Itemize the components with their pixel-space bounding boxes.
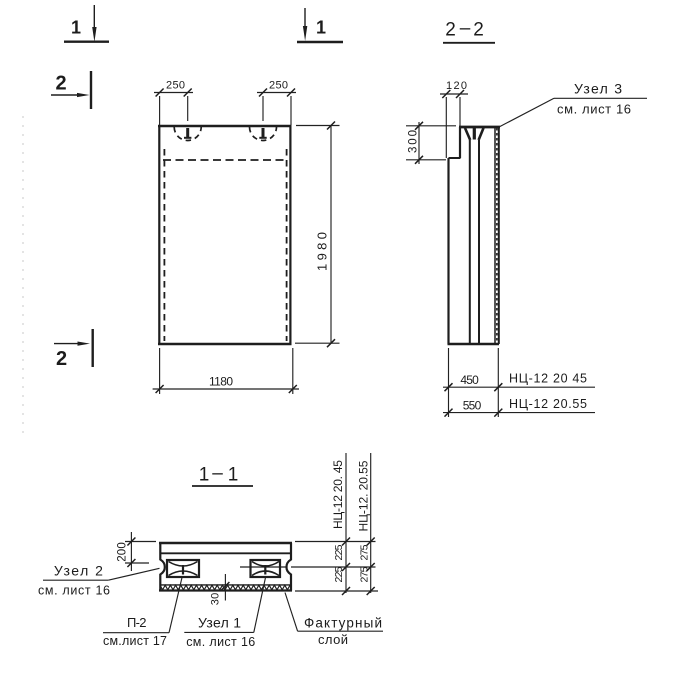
svg-text:Фактурный: Фактурный (304, 616, 382, 631)
svg-text:450: 450 (460, 373, 479, 387)
svg-text:Узел 2: Узел 2 (54, 563, 103, 579)
svg-text:см. лист 16: см. лист 16 (38, 584, 110, 598)
svg-text:см. лист 16: см. лист 16 (186, 635, 255, 649)
svg-text:30: 30 (210, 593, 222, 606)
svg-text:П-2: П-2 (127, 615, 147, 630)
svg-text:250: 250 (166, 80, 185, 92)
svg-text:слой: слой (318, 632, 348, 647)
svg-text:225: 225 (333, 544, 345, 560)
svg-text:200: 200 (117, 542, 129, 562)
svg-text:Узел 3: Узел 3 (574, 81, 622, 97)
svg-text:550: 550 (463, 399, 482, 413)
svg-text:275: 275 (359, 544, 371, 560)
svg-text:1: 1 (228, 465, 239, 486)
svg-text:1: 1 (71, 18, 81, 38)
svg-text:275: 275 (359, 566, 371, 582)
svg-text:300: 300 (407, 130, 419, 153)
svg-text:–: – (460, 18, 471, 39)
svg-text:1180: 1180 (209, 375, 233, 389)
svg-text:НЦ-12 20 45: НЦ-12 20 45 (509, 372, 587, 386)
svg-text:1: 1 (316, 18, 326, 38)
svg-text:см.лист 17: см.лист 17 (103, 634, 167, 648)
svg-text:НЦ-12. 20.55: НЦ-12. 20.55 (357, 460, 371, 531)
svg-text:2: 2 (56, 348, 67, 370)
svg-text:НЦ-12 20.55: НЦ-12 20.55 (509, 397, 587, 411)
svg-text:см. лист 16: см. лист 16 (557, 102, 631, 117)
svg-text:1: 1 (199, 465, 210, 486)
svg-text:2: 2 (56, 73, 67, 95)
svg-text:2: 2 (445, 20, 456, 41)
svg-text:225: 225 (333, 566, 345, 582)
svg-text:120: 120 (446, 80, 467, 92)
svg-text:Узел 1: Узел 1 (198, 615, 241, 631)
svg-text:2: 2 (473, 20, 484, 41)
svg-text:НЦ-12 20. 45: НЦ-12 20. 45 (331, 460, 345, 529)
svg-text:–: – (212, 463, 223, 484)
svg-text:250: 250 (269, 80, 288, 92)
